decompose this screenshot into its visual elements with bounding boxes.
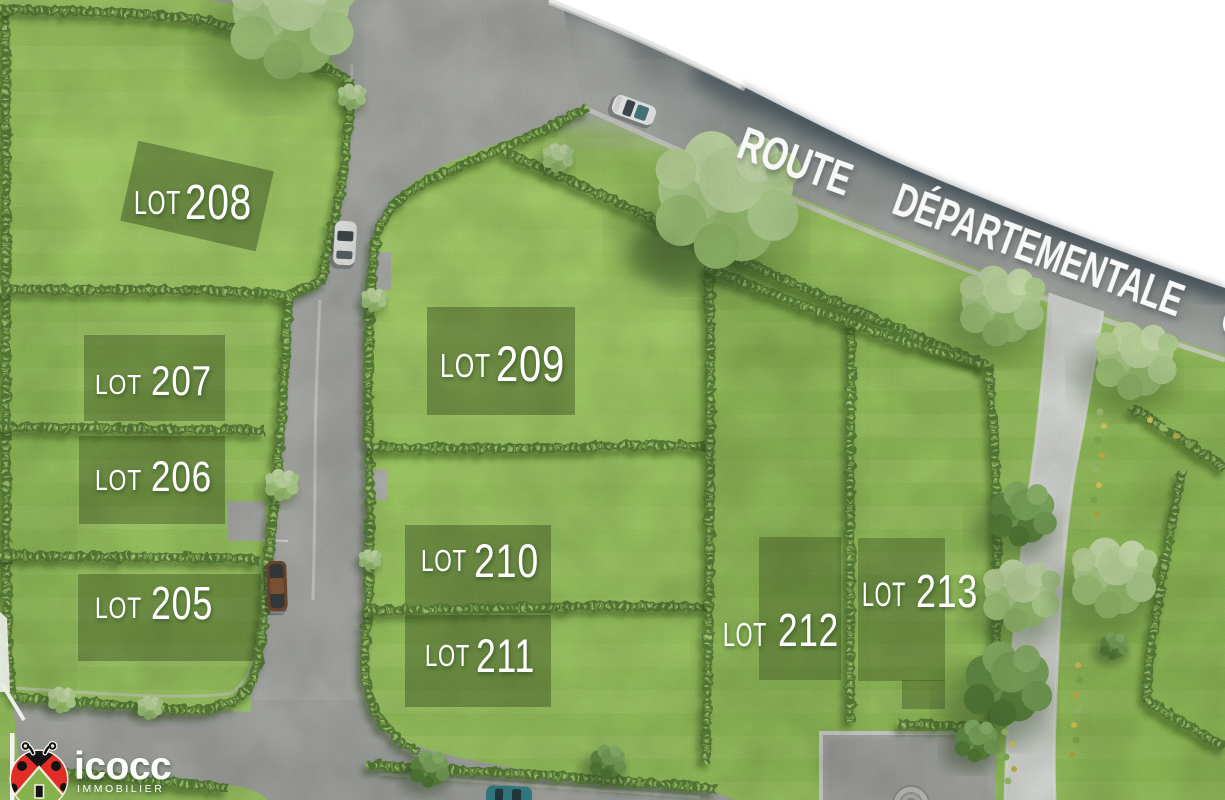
svg-text:208: 208 [185,176,252,230]
svg-text:icocc: icocc [74,745,171,788]
svg-text:209: 209 [496,336,565,392]
svg-text:LOT: LOT [134,184,181,221]
svg-text:212: 212 [778,604,839,656]
svg-text:LOT: LOT [723,616,767,653]
svg-text:LOT: LOT [862,576,906,614]
svg-text:LOT: LOT [95,369,142,400]
svg-text:206: 206 [151,453,212,501]
svg-text:LOT: LOT [95,465,142,497]
svg-text:213: 213 [916,565,978,617]
svg-text:LOT: LOT [95,592,142,625]
svg-text:LOT: LOT [425,638,470,673]
svg-text:210: 210 [474,534,539,587]
svg-text:IMMOBILIER: IMMOBILIER [77,783,165,795]
svg-text:205: 205 [151,577,213,629]
svg-text:207: 207 [151,357,212,404]
svg-text:LOT: LOT [421,543,467,578]
svg-text:LOT: LOT [440,347,491,384]
svg-text:211: 211 [476,629,535,682]
